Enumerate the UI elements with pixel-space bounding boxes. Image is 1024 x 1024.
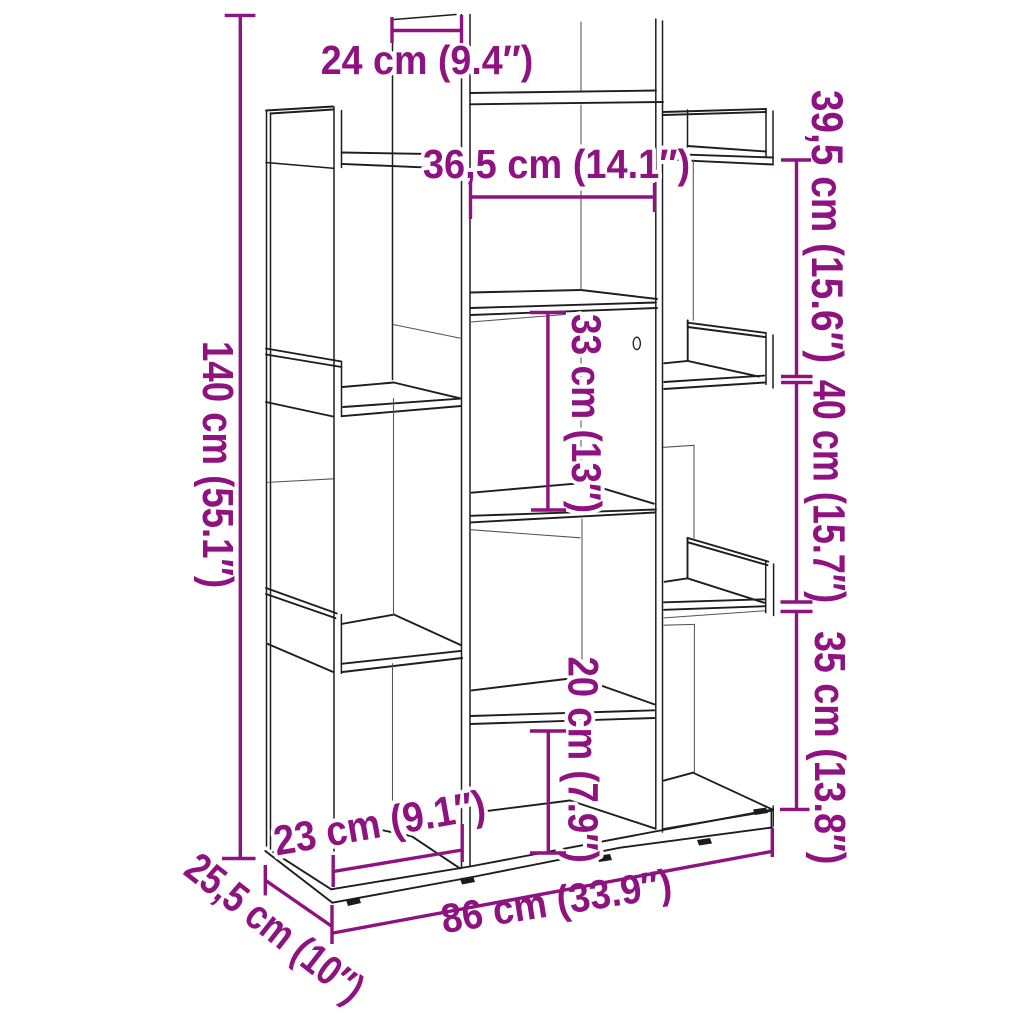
- svg-text:40 cm (15.7″): 40 cm (15.7″): [804, 380, 855, 603]
- svg-text:86 cm (33.9″): 86 cm (33.9″): [438, 861, 675, 943]
- svg-text:24 cm (9.4″): 24 cm (9.4″): [321, 39, 534, 84]
- svg-text:20 cm (7.9″): 20 cm (7.9″): [559, 656, 606, 862]
- svg-text:33 cm (13″): 33 cm (13″): [562, 314, 608, 513]
- svg-text:35 cm (13.8″): 35 cm (13.8″): [805, 631, 854, 864]
- svg-text:39,5 cm (15.6″): 39,5 cm (15.6″): [802, 90, 852, 363]
- svg-text:140 cm (55.1″): 140 cm (55.1″): [193, 341, 243, 588]
- svg-text:36,5 cm (14.1″): 36,5 cm (14.1″): [423, 142, 690, 188]
